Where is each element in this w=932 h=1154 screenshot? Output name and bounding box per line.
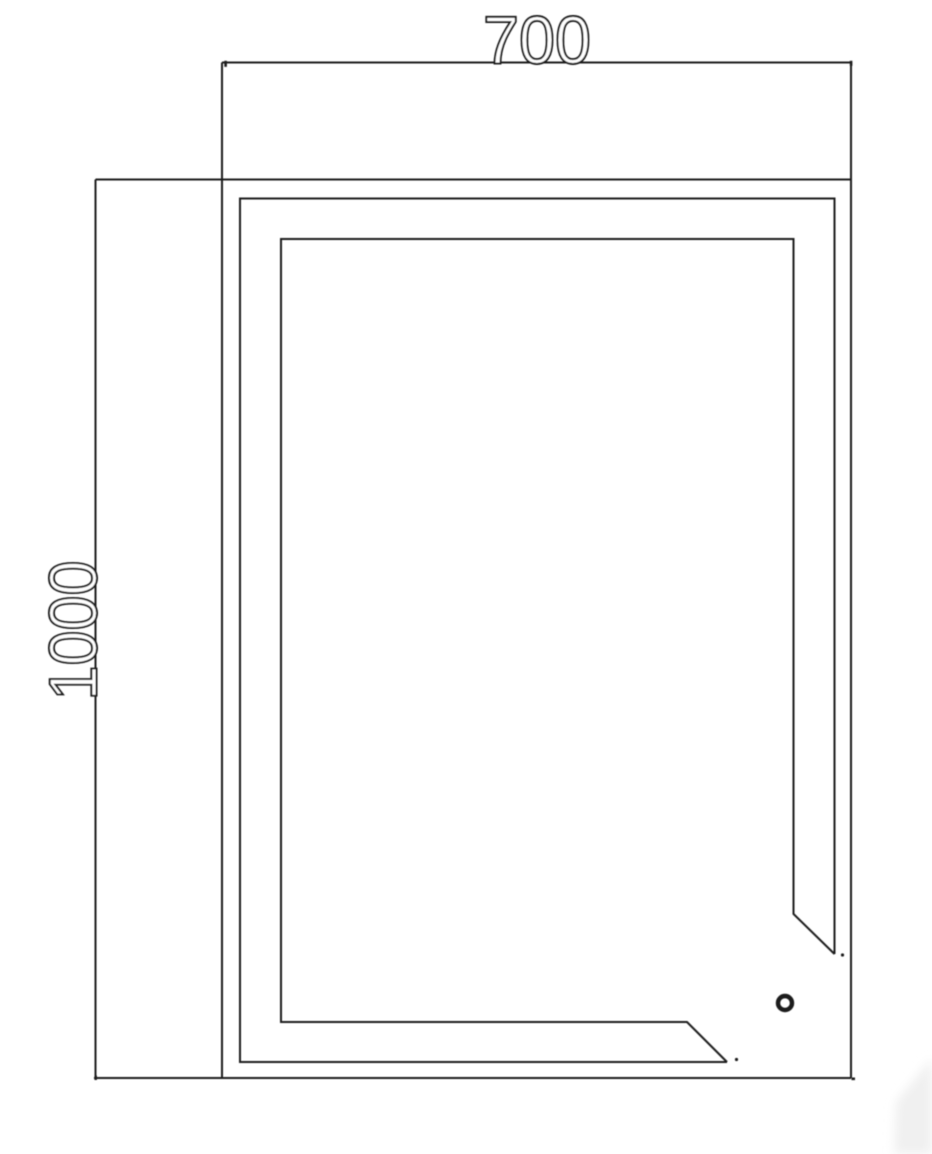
- svg-text:700: 700: [483, 3, 591, 79]
- svg-text:1000: 1000: [36, 561, 112, 701]
